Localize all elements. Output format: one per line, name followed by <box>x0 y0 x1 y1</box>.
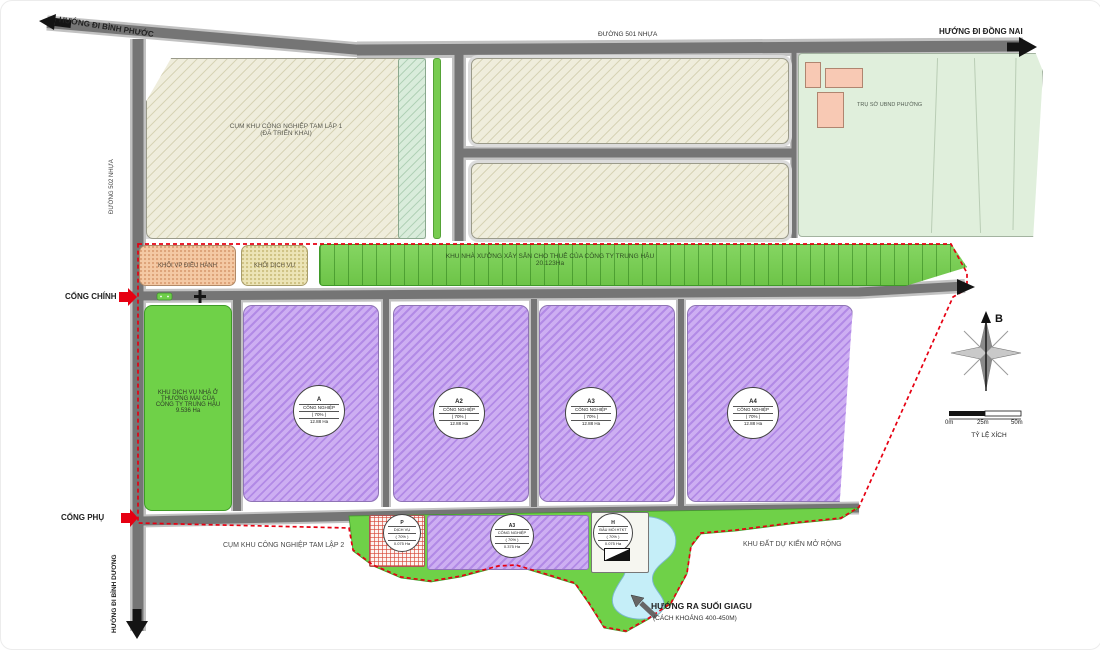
badge-density: ( 70% ) <box>439 414 479 421</box>
label-tam-lap-2: CỤM KHU CÔNG NGHIỆP TAM LẬP 2 <box>223 542 344 550</box>
label-cong-phu: CỔNG PHỤ <box>61 513 104 522</box>
badge-density: ( 70% ) <box>299 412 339 419</box>
land-badge-a: A CÔNG NGHIỆP ( 70% ) 12.88 Ha <box>293 385 345 437</box>
parcel-workshop-band: KHU NHÀ XƯỞNG XÂY SẴN CHO THUÊ CỦA CÔNG … <box>319 244 967 286</box>
tam-lap-1-label: CỤM KHU CÔNG NGHIỆP TAM LẬP 1 (ĐÃ TRIỂN … <box>147 123 425 137</box>
substation-symbol-icon <box>604 548 630 561</box>
land-badge-a4: A4 CÔNG NGHIỆP ( 70% ) 12.88 Ha <box>727 387 779 439</box>
land-badge-a3-small: A3 CÔNG NGHIỆP ( 70% ) 0.375 Ha <box>490 514 534 558</box>
parcel-top-lower <box>471 163 789 239</box>
workshop-line1: KHU NHÀ XƯỞNG XÂY SẴN CHO THUÊ CỦA CÔNG … <box>330 253 770 260</box>
label-binh-duong: HƯỚNG ĐI BÌNH DƯƠNG <box>111 531 118 633</box>
scale-tick-50: 50m <box>1011 420 1023 427</box>
label-north-b: B <box>995 313 1003 326</box>
label-expansion: KHU ĐẤT DỰ KIẾN MỞ RỘNG <box>743 541 842 549</box>
badge-density: ( 70% ) <box>495 537 529 544</box>
site-plan-map: CỤM KHU CÔNG NGHIỆP TAM LẬP 1 (ĐÃ TRIỂN … <box>0 0 1100 650</box>
badge-area: 12.88 Ha <box>582 421 600 427</box>
label-duong-502: ĐƯỜNG 502 NHỰA <box>109 129 116 214</box>
badge-density: ( 70% ) <box>571 414 611 421</box>
ubnd-building <box>805 62 821 88</box>
label-duong-501: ĐƯỜNG 501 NHỰA <box>598 31 657 38</box>
land-badge-a3: A3 CÔNG NGHIỆP ( 70% ) 12.88 Ha <box>565 387 617 439</box>
scale-tick-0: 0m <box>945 420 953 427</box>
badge-type: CÔNG NGHIỆP <box>571 406 611 414</box>
parcel-top-upper <box>471 58 789 144</box>
khu-dich-vu-label: KHU DỊCH VỤ NHÀ Ở THƯƠNG MẠI CỦA CÔNG TY… <box>145 390 231 414</box>
badge-density: ( 70% ) <box>733 414 773 421</box>
parcel-khoi-dich-vu: KHỐI DỊCH VỤ <box>241 245 308 286</box>
label-suoi-1: HƯỚNG RA SUỐI GIAGU <box>651 602 752 612</box>
badge-code: A <box>317 397 321 404</box>
badge-area: 12.88 Ha <box>744 421 762 427</box>
ubnd-building <box>825 68 863 88</box>
badge-type: CÔNG NGHIỆP <box>495 529 529 537</box>
label-cong-chinh: CỔNG CHÍNH <box>65 292 117 301</box>
label-suoi-2: (CÁCH KHOẢNG 400-450M) <box>653 615 737 622</box>
badge-area: 12.88 Ha <box>310 419 328 425</box>
badge-code: A2 <box>455 399 463 406</box>
badge-code: A4 <box>749 399 757 406</box>
khoi-dich-vu-label: KHỐI DỊCH VỤ <box>254 263 295 269</box>
label-ty-le-xich: TỶ LỆ XÍCH <box>953 432 1025 439</box>
badge-area: 0.075 Ha <box>605 541 621 547</box>
badge-density: ( 70% ) <box>388 534 417 541</box>
badge-area: 0.075 Ha <box>394 541 410 547</box>
badge-type: DỊCH VỤ <box>388 526 417 534</box>
tam-lap-1-line1: CỤM KHU CÔNG NGHIỆP TAM LẬP 1 <box>147 123 425 130</box>
badge-area: 12.88 Ha <box>450 421 468 427</box>
workshop-line2: 20.123Ha <box>330 260 770 267</box>
workshop-label: KHU NHÀ XƯỞNG XÂY SẴN CHO THUÊ CỦA CÔNG … <box>330 253 770 267</box>
tree-strip <box>433 58 441 239</box>
badge-type: CÔNG NGHIỆP <box>733 406 773 414</box>
badge-area: 0.375 Ha <box>504 544 520 550</box>
land-badge-a2: A2 CÔNG NGHIỆP ( 70% ) 12.88 Ha <box>433 387 485 439</box>
kdv-line4: 9.536 Ha <box>145 408 231 414</box>
khoi-vp-label: KHỐI VP ĐIỀU HÀNH <box>158 263 217 269</box>
field-line <box>1012 58 1016 230</box>
badge-type: CÔNG NGHIỆP <box>299 404 339 412</box>
parcel-ubnd: TRỤ SỞ UBND PHƯỜNG <box>798 53 1043 237</box>
badge-type: CÔNG NGHIỆP <box>439 406 479 414</box>
badge-type: ĐẦU MỐI HTKT <box>598 526 628 534</box>
land-badge-h: H ĐẦU MỐI HTKT ( 70% ) 0.075 Ha <box>593 513 633 553</box>
land-badge-p: P DỊCH VỤ ( 70% ) 0.075 Ha <box>383 514 421 552</box>
ubnd-label: TRỤ SỞ UBND PHƯỜNG <box>857 102 922 108</box>
field-line <box>974 58 981 233</box>
badge-density: ( 70% ) <box>598 534 628 541</box>
ubnd-building <box>817 92 844 128</box>
parcel-tam-lap-1: CỤM KHU CÔNG NGHIỆP TAM LẬP 1 (ĐÃ TRIỂN … <box>146 58 426 239</box>
parcel-khoi-vp: KHỐI VP ĐIỀU HÀNH <box>139 245 236 286</box>
scale-tick-25: 25m <box>977 420 989 427</box>
field-line <box>931 58 938 233</box>
label-dong-nai: HƯỚNG ĐI ĐỒNG NAI <box>939 27 1023 36</box>
tam-lap-1-line2: (ĐÃ TRIỂN KHAI) <box>147 130 425 137</box>
parcel-khu-dich-vu-nha-o: KHU DỊCH VỤ NHÀ Ở THƯƠNG MẠI CỦA CÔNG TY… <box>144 305 232 511</box>
parcel-teal-strip <box>398 58 426 239</box>
badge-code: A3 <box>587 399 595 406</box>
